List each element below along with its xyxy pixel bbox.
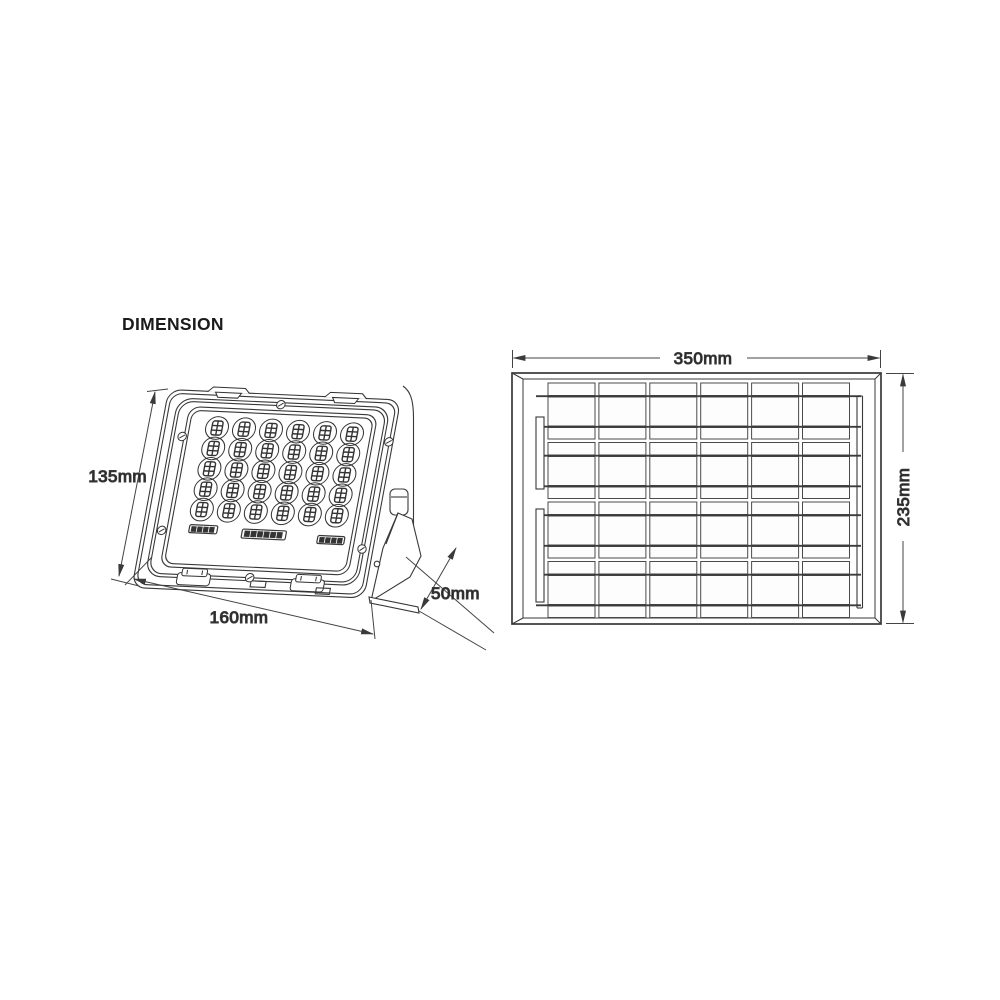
dimension-diagram: DIMENSION	[0, 0, 1000, 1000]
dim-label-panel-height: 235mm	[894, 468, 913, 527]
hinge-screw-icon	[358, 545, 366, 553]
technical-drawing-page: DIMENSION	[0, 0, 1000, 1000]
page-title: DIMENSION	[122, 314, 224, 334]
floodlight-front-face	[132, 385, 402, 598]
floodlight-drawing: 135mm 160mm 50mm	[88, 385, 494, 650]
bracket-arm	[371, 513, 421, 601]
dim-label-bracket-depth: 50mm	[431, 584, 480, 603]
left-rail-upper	[536, 417, 544, 489]
bracket-foot	[369, 597, 419, 613]
solar-panel-drawing: 350mm 235mm	[512, 349, 914, 624]
dim-label-panel-width: 350mm	[674, 349, 733, 368]
bracket-knob	[390, 489, 408, 515]
left-rail-lower	[536, 509, 544, 602]
bracket-rivet	[374, 561, 380, 567]
dim-label-floodlight-height: 135mm	[88, 467, 147, 486]
dim-label-floodlight-width: 160mm	[210, 608, 269, 627]
